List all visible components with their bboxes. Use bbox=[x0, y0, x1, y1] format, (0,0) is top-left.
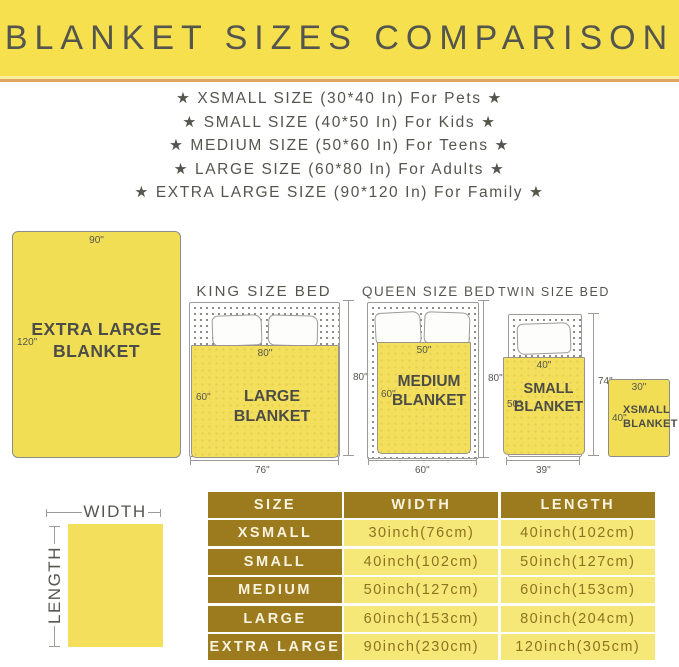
table-header-width: WIDTH bbox=[344, 492, 498, 518]
small-blanket-label: SMALL BLANKET bbox=[513, 380, 584, 416]
pillow bbox=[516, 322, 571, 355]
king-length-dim-line bbox=[348, 300, 349, 456]
queen-length-dim-line bbox=[483, 300, 484, 458]
table-row-length: 120inch(305cm) bbox=[501, 634, 655, 660]
table-row-width: 90inch(230cm) bbox=[344, 634, 498, 660]
small-blanket-width-dim: 40" bbox=[537, 360, 552, 371]
legend-swatch bbox=[68, 524, 163, 647]
medium-blanket-label: MEDIUM BLANKET bbox=[388, 372, 470, 411]
xl-blanket-label: EXTRA LARGE BLANKET bbox=[13, 319, 180, 363]
page-title: BLANKET SIZES COMPARISON bbox=[0, 0, 679, 76]
xsmall-blanket: 30" 40" XSMALL BLANKET bbox=[608, 379, 670, 457]
table-row-length: 50inch(127cm) bbox=[501, 549, 655, 575]
blanket-sizes-infographic: BLANKET SIZES COMPARISON ★ XSMALL SIZE (… bbox=[0, 0, 679, 667]
large-blanket: 80" 60" LARGE BLANKET bbox=[191, 345, 339, 458]
xsmall-blanket-label: XSMALL BLANKET bbox=[623, 404, 667, 432]
size-summary-item: ★ XSMALL SIZE (30*40 In) For Pets ★ bbox=[0, 87, 679, 111]
table-row-width: 30inch(76cm) bbox=[344, 520, 498, 546]
table-row-size: SMALL bbox=[208, 549, 342, 575]
size-summary-list: ★ XSMALL SIZE (30*40 In) For Pets ★ ★ SM… bbox=[0, 87, 679, 205]
table-row-width: 50inch(127cm) bbox=[344, 577, 498, 603]
width-axis-label: WIDTH bbox=[82, 502, 148, 522]
table-row-length: 80inch(204cm) bbox=[501, 606, 655, 632]
xl-width-dim: 90" bbox=[89, 235, 104, 246]
twin-width-dim: 39" bbox=[536, 465, 551, 476]
pillow bbox=[211, 314, 262, 347]
pillow bbox=[268, 314, 319, 346]
size-table: SIZE WIDTH LENGTH XSMALL 30inch(76cm) 40… bbox=[208, 492, 655, 660]
table-row-size: LARGE bbox=[208, 606, 342, 632]
banner-accent-line-orange bbox=[0, 79, 679, 82]
table-row-length: 60inch(153cm) bbox=[501, 577, 655, 603]
king-width-dim-line bbox=[190, 460, 339, 461]
xl-blanket: 90" 120" EXTRA LARGE BLANKET bbox=[12, 231, 181, 458]
size-summary-item: ★ MEDIUM SIZE (50*60 In) For Teens ★ bbox=[0, 134, 679, 158]
king-bed-title: KING SIZE BED bbox=[188, 283, 340, 300]
king-width-dim: 76" bbox=[255, 465, 270, 476]
table-row-size: MEDIUM bbox=[208, 577, 342, 603]
table-row-width: 60inch(153cm) bbox=[344, 606, 498, 632]
pillow bbox=[423, 311, 470, 346]
table-row-length: 40inch(102cm) bbox=[501, 520, 655, 546]
table-row-width: 40inch(102cm) bbox=[344, 549, 498, 575]
queen-length-dim: 80" bbox=[488, 373, 503, 384]
medium-blanket: 50" 60" MEDIUM BLANKET bbox=[377, 342, 471, 454]
table-row-size: EXTRA LARGE bbox=[208, 634, 342, 660]
small-blanket: 40" 50" SMALL BLANKET bbox=[503, 357, 585, 455]
queen-width-dim: 60" bbox=[415, 465, 430, 476]
twin-length-dim-line bbox=[593, 313, 594, 456]
table-header-size: SIZE bbox=[208, 492, 342, 518]
king-length-dim: 80" bbox=[353, 372, 368, 383]
length-axis-label: LENGTH bbox=[44, 544, 66, 626]
twin-width-dim-line bbox=[506, 460, 580, 461]
large-blanket-label: LARGE BLANKET bbox=[206, 387, 338, 427]
pillow bbox=[374, 311, 422, 346]
queen-width-dim-line bbox=[368, 460, 477, 461]
table-header-length: LENGTH bbox=[501, 492, 655, 518]
xsmall-width-dim: 30" bbox=[632, 382, 647, 393]
large-blanket-width-dim: 80" bbox=[258, 348, 273, 359]
size-summary-item: ★ EXTRA LARGE SIZE (90*120 In) For Famil… bbox=[0, 181, 679, 205]
table-row-size: XSMALL bbox=[208, 520, 342, 546]
header-banner: BLANKET SIZES COMPARISON bbox=[0, 0, 679, 76]
medium-blanket-width-dim: 50" bbox=[417, 345, 432, 356]
twin-bed-title: TWIN SIZE BED bbox=[498, 285, 594, 299]
size-summary-item: ★ SMALL SIZE (40*50 In) For Kids ★ bbox=[0, 111, 679, 135]
size-summary-item: ★ LARGE SIZE (60*80 In) For Adults ★ bbox=[0, 158, 679, 182]
queen-bed-title: QUEEN SIZE BED bbox=[362, 284, 482, 299]
